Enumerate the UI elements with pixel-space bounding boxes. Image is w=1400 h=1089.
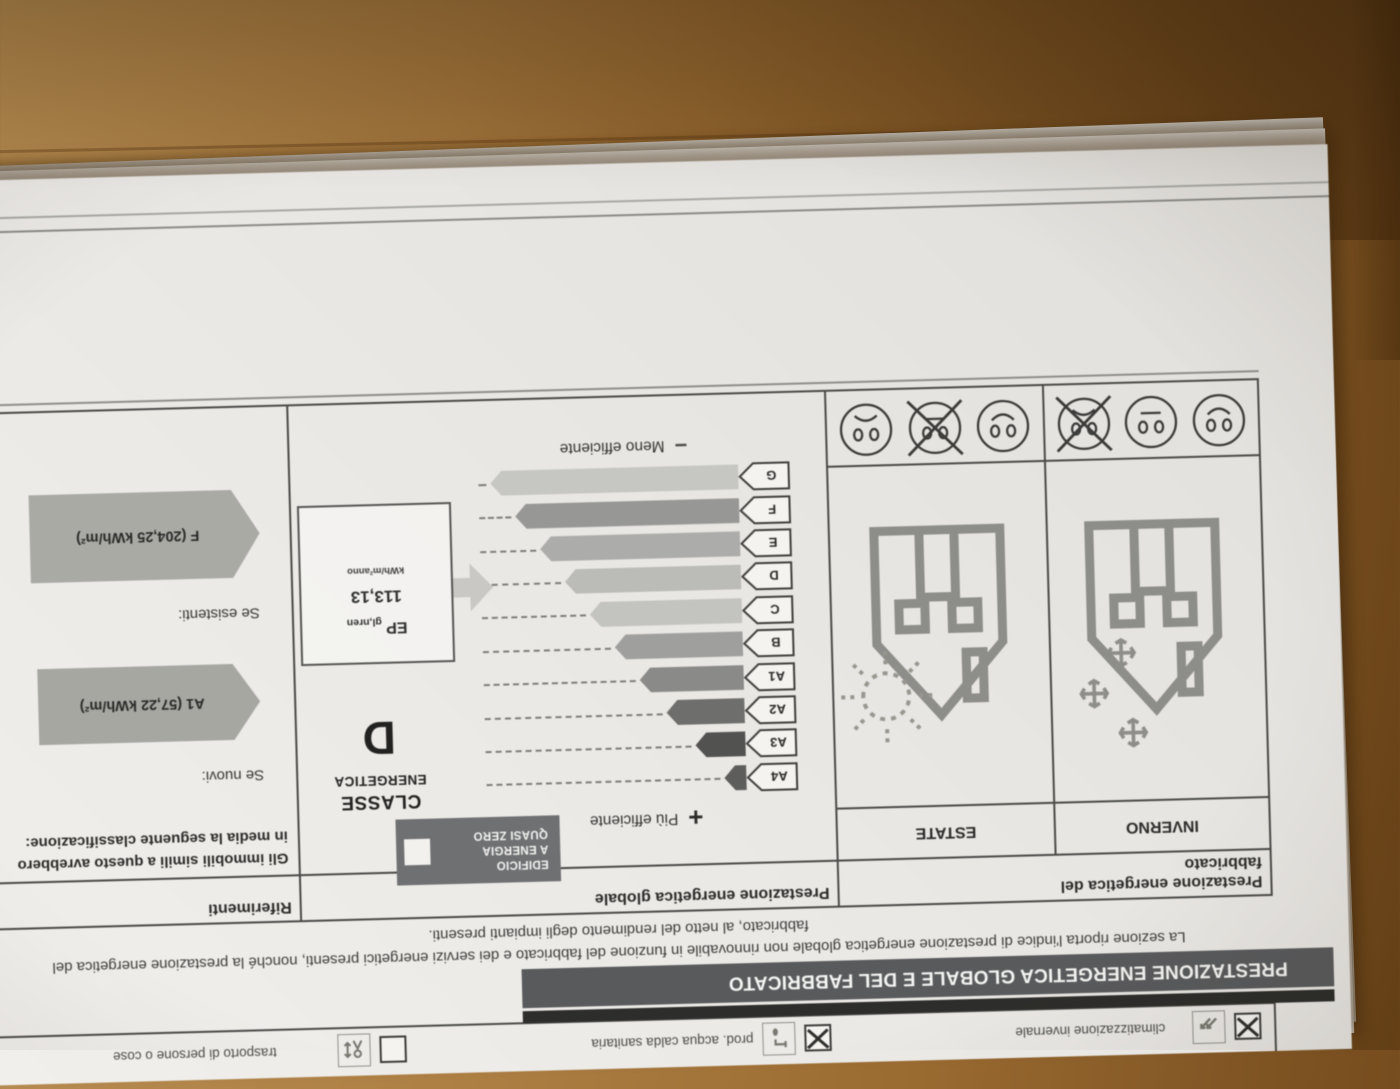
class-letter-pentagon: A4	[746, 762, 799, 792]
se-nuovi-label: Se nuovi:	[201, 766, 264, 785]
smile-face-icon	[1189, 391, 1249, 451]
energy-class-scale: A4A3A2A1BCDEFG	[476, 459, 799, 801]
class-bar-c	[590, 598, 743, 627]
class-bar-b	[615, 631, 744, 659]
svg-text:D: D	[769, 568, 779, 583]
globale-column: + Più efficiente EDIFICIO A ENERGIA QUAS…	[286, 392, 836, 874]
inverno-label: INVERNO	[1055, 796, 1269, 854]
class-bar-f	[515, 498, 740, 529]
class-bar-g	[490, 465, 739, 497]
dotted-leader	[487, 778, 721, 786]
smiley-frown	[837, 395, 897, 460]
svg-text:A4: A4	[770, 768, 788, 783]
desk-edge-shadow	[1352, 0, 1400, 360]
minus-icon: −	[674, 438, 687, 452]
smiley-neutral	[1122, 388, 1182, 453]
svg-text:G: G	[766, 468, 777, 483]
se-nuovi-arrow: A1 (57,22 kWh/m²)	[37, 663, 261, 745]
riferimenti-column: Gli immobili simili a questo avrebbero i…	[0, 406, 299, 883]
class-letter-pentagon: F	[739, 494, 792, 524]
smiley-neutral	[905, 394, 965, 459]
lift-icon	[337, 1033, 371, 1067]
ep-value-box: EP gl,nren 113,13 kWh/m²anno	[297, 502, 455, 666]
class-bar-a2	[666, 698, 745, 725]
class-letter-pentagon: A3	[745, 728, 798, 758]
dotted-leader	[482, 615, 586, 620]
dotted-leader	[480, 549, 536, 553]
class-letter-pentagon: E	[740, 528, 793, 558]
smiley-smile	[974, 392, 1034, 457]
service-label: climatizzazione invernale	[1015, 1021, 1165, 1040]
svg-text:E: E	[768, 535, 777, 550]
svg-text:F: F	[768, 501, 776, 516]
riferimenti-text: Gli immobili simili a questo avrebbero i…	[10, 825, 289, 877]
dotted-leader	[479, 517, 511, 520]
frown-face-icon-crossed	[1054, 395, 1114, 455]
class-letter-pentagon: G	[738, 461, 791, 491]
estate-column: ESTATE	[826, 386, 1055, 860]
class-letter-pentagon: B	[742, 628, 795, 658]
class-letter-pentagon: A1	[743, 661, 796, 691]
energy-class-value: D	[303, 709, 456, 767]
ep-unit: kWh/m²anno	[301, 563, 451, 578]
smiley-smile	[1189, 386, 1249, 451]
service-label: trasporto di persone o cose	[113, 1045, 277, 1064]
fabbricato-column: INVERNO	[824, 380, 1270, 860]
smile-face-icon	[974, 397, 1034, 457]
service-item: climatizzazione invernale	[1015, 1009, 1262, 1049]
frown-face-icon	[837, 400, 897, 460]
dotted-leader	[484, 680, 636, 686]
service-item: trasporto di persone o cose	[113, 1032, 407, 1073]
nzeb-checkbox	[404, 839, 431, 866]
snowflake-icon	[1118, 717, 1149, 748]
service-item: prod. acqua calda sanitaria	[591, 1021, 832, 1060]
plus-icon: +	[688, 807, 704, 827]
class-bar-e	[540, 531, 741, 561]
table-body: INVERNO	[0, 380, 1270, 884]
smiley-frown	[1054, 390, 1114, 455]
service-checkbox-checked	[1234, 1012, 1262, 1040]
estate-label: ESTATE	[837, 802, 1054, 860]
class-letter-pentagon: A2	[744, 695, 797, 725]
meno-efficiente-row: − Meno efficiente	[559, 436, 687, 457]
service-label: prod. acqua calda sanitaria	[591, 1032, 753, 1051]
snowflake-icon	[1079, 678, 1110, 709]
class-letter-pentagon: D	[741, 561, 794, 591]
class-letter-pentagon: C	[741, 595, 794, 625]
fabbricato-header-cell: Prestazione energetica del fabbricato	[837, 850, 1271, 906]
neutral-face-icon-crossed	[905, 399, 965, 459]
dotted-leader	[483, 647, 611, 652]
page-bottom-line	[0, 195, 1329, 237]
inverno-smiley-row	[1044, 380, 1259, 462]
dotted-leader	[485, 713, 663, 720]
estate-smiley-row	[826, 386, 1044, 468]
class-bar-d	[565, 565, 742, 595]
riferimenti-header-cell: Riferimenti	[0, 876, 300, 930]
class-bar-a4	[724, 765, 747, 791]
service-checkbox-checked	[804, 1024, 832, 1052]
se-esistenti-arrow: F (204,25 kWh/m²)	[29, 489, 261, 583]
performance-table: Prestazione energetica del fabbricato Pr…	[0, 378, 1273, 932]
snowflake-icon	[1106, 638, 1137, 669]
sun-icon	[833, 643, 940, 750]
energy-class-block: CLASSE ENERGETICA D	[303, 709, 458, 814]
neutral-face-icon	[1122, 393, 1182, 453]
hot-water-icon	[762, 1022, 796, 1056]
winter-air-icon	[1192, 1010, 1226, 1044]
nzeb-badge: EDIFICIO A ENERGIA QUASI ZERO	[395, 815, 561, 885]
class-bar-a3	[695, 732, 746, 758]
dotted-leader	[481, 582, 561, 586]
ep-value: 113,13	[301, 584, 451, 608]
class-bar-a1	[639, 665, 744, 693]
svg-text:C: C	[769, 602, 779, 617]
se-esistenti-label: Se esistenti:	[178, 604, 260, 623]
inverno-column: INVERNO	[1042, 380, 1270, 854]
nzeb-text: EDIFICIO A ENERGIA QUASI ZERO	[473, 826, 549, 873]
svg-text:B: B	[771, 635, 781, 650]
svg-text:A2: A2	[769, 702, 786, 717]
document-paper: climatizzazione invernaleprod. acqua cal…	[0, 144, 1352, 1089]
piu-efficiente-row: + Più efficiente	[590, 807, 704, 830]
estate-house-cell	[828, 462, 1053, 808]
svg-text:A1: A1	[768, 668, 785, 683]
dotted-leader	[478, 484, 486, 486]
inverno-house-cell	[1046, 456, 1268, 802]
service-checkbox	[379, 1035, 407, 1063]
svg-text:A3: A3	[770, 735, 787, 750]
ape-certificate-page: climatizzazione invernaleprod. acqua cal…	[0, 144, 1352, 1089]
dotted-leader	[486, 745, 692, 753]
